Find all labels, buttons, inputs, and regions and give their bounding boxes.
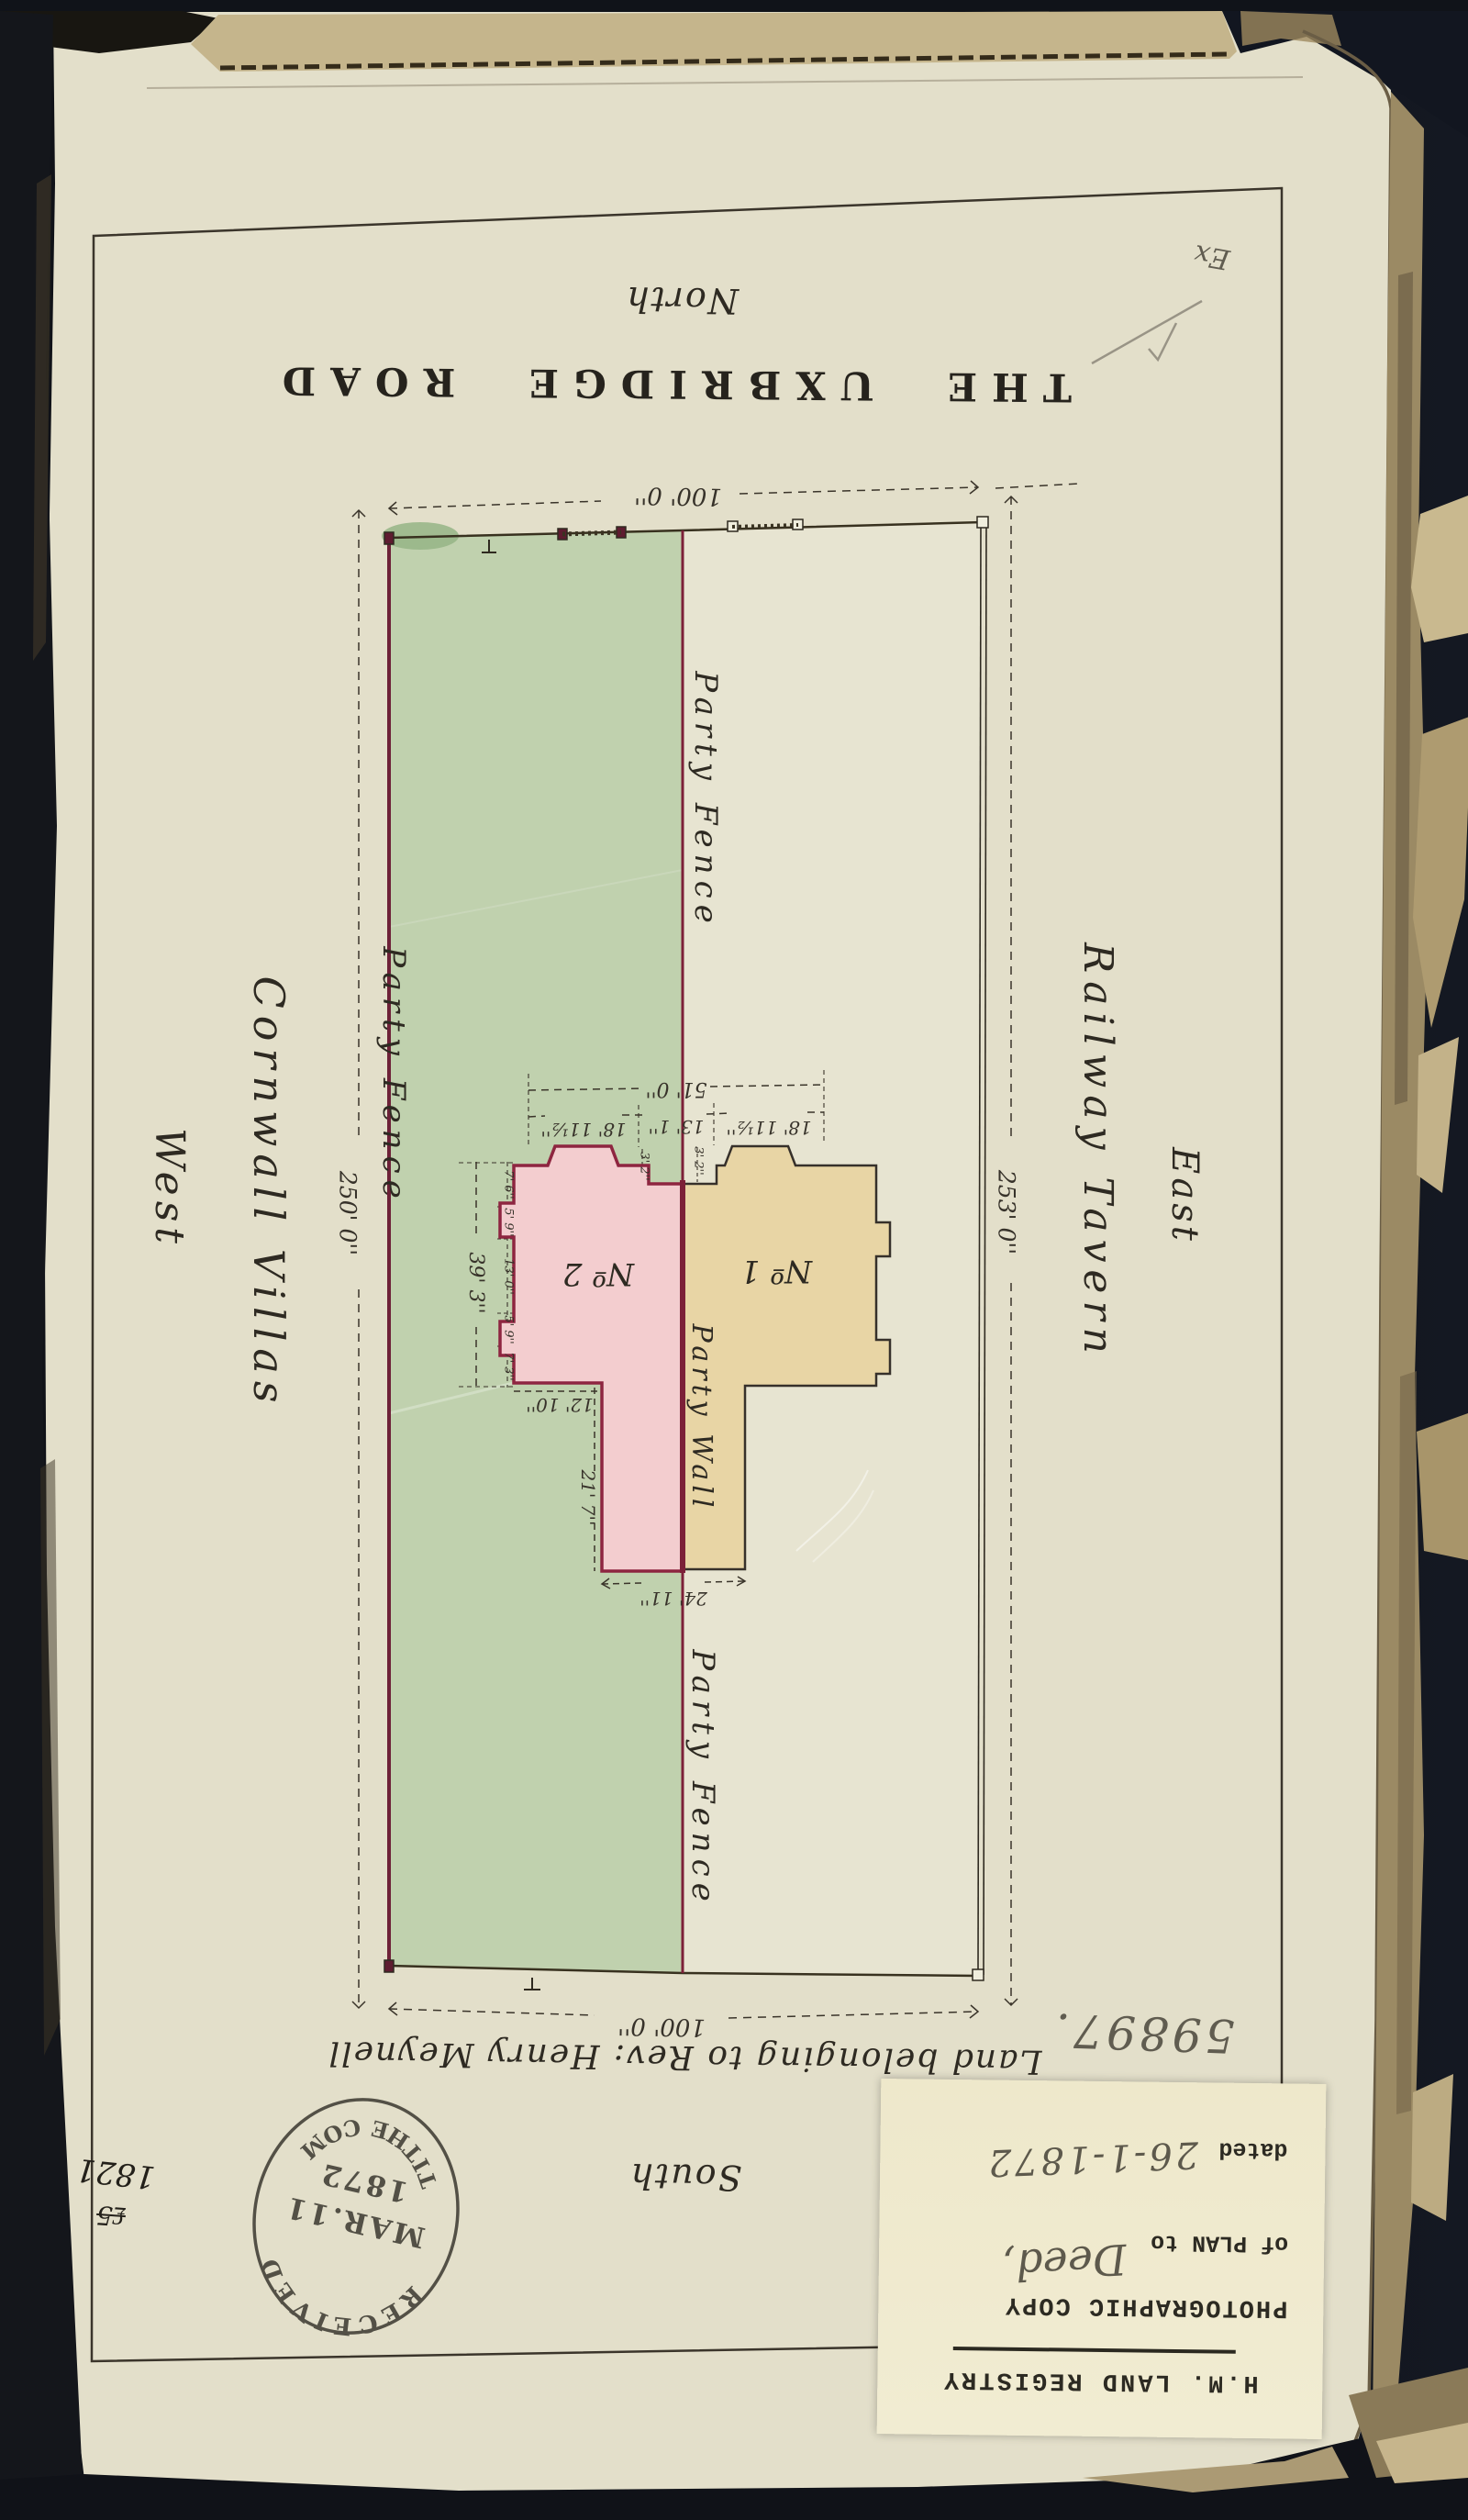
- land-registry-sticker: H.M. LAND REGISTRY PHOTOGRAPHIC COPY of …: [877, 2079, 1327, 2439]
- dim-centre: 13' 1'': [648, 1118, 704, 1136]
- dim-step-east: 3' 2'': [693, 1146, 705, 1175]
- dim-depth-west: 250' 0'': [337, 1171, 360, 1255]
- svg-text:RECEIVED: RECEIVED: [241, 2246, 430, 2358]
- dim-bay-west: 18' 11½'': [540, 1121, 626, 1139]
- boundary-east-inner: [984, 522, 986, 1975]
- dim-houses-total: 51' 0'': [645, 1078, 706, 1098]
- label-west: West: [149, 1128, 189, 1249]
- dim-flank-part: 5' 9'': [503, 1315, 515, 1344]
- dim-wings-width: 24' 11'': [639, 1589, 707, 1608]
- page-left-binding: [0, 11, 84, 2520]
- dim-flank-part: 7' 3'': [503, 1352, 515, 1380]
- label-north: North: [625, 282, 740, 318]
- sticker-registry-title: H.M. LAND REGISTRY: [877, 2364, 1322, 2397]
- dim-frontage-south: 100' 0'': [617, 2013, 706, 2039]
- label-railway-tavern: Railway Tavern: [1077, 942, 1118, 1361]
- label-owner-note: Land belonging to Rev: Henry Meynell: [327, 2035, 1041, 2078]
- page-right-torn-edge: [1303, 31, 1468, 2478]
- label-cornwall-villas: Cornwall Villas: [248, 976, 290, 1411]
- dim-bay-east: 18' 11½'': [726, 1119, 811, 1137]
- label-east: East: [1166, 1147, 1203, 1244]
- note-filed-number: 59897.: [1051, 2007, 1236, 2059]
- dim-frontage-north: 100' 0'': [634, 483, 722, 508]
- sticker-date-hand: 26-1-1872: [984, 2133, 1199, 2183]
- page-top-edge: [0, 0, 1468, 138]
- sticker-document-hand: Deed,: [1001, 2235, 1128, 2291]
- note-fee: ₤5: [95, 2202, 127, 2229]
- dim-flank-total: 39' 3'': [465, 1252, 485, 1313]
- note-year: 1821: [74, 2154, 157, 2193]
- sticker-underline: [953, 2347, 1236, 2354]
- dim-wing-offset: 12' 10'': [526, 1396, 594, 1414]
- label-party-fence-top: Party Fence: [690, 671, 721, 929]
- note-corner-mark: Ex: [1192, 240, 1231, 273]
- label-uxbridge-road: THE UXBRIDGE ROAD: [268, 361, 1073, 407]
- label-party-fence-west: Party Fence: [378, 946, 409, 1204]
- label-house-no1: Nº 1: [740, 1255, 812, 1287]
- sticker-of-plan-to: of PLAN to: [1151, 2229, 1288, 2258]
- stamp-arc-top: RECEIVED: [241, 2246, 430, 2358]
- label-party-fence-bottom: Party Fence: [687, 1649, 718, 1907]
- dim-depth-east: 253' 0'': [995, 1170, 1018, 1254]
- label-party-wall: Party Wall: [687, 1324, 715, 1512]
- sticker-copy-type: PHOTOGRAPHIC COPY: [1030, 2291, 1287, 2321]
- label-south: South: [628, 2158, 742, 2195]
- tithe-received-stamp: RECEIVED MAR.11 1872 TITHE COM: [229, 2080, 481, 2360]
- dim-wing-depth: 21' 7'': [579, 1469, 597, 1525]
- dim-flank-part: 13' 0'': [503, 1258, 515, 1295]
- dim-flank-part: 5' 9'': [503, 1208, 515, 1236]
- sticker-dated-label: dated: [1218, 2136, 1287, 2164]
- dim-step-west: 3' 2'': [639, 1152, 651, 1180]
- dim-flank-part: 7' 6'': [503, 1170, 515, 1199]
- label-house-no2: Nº 2: [562, 1258, 634, 1289]
